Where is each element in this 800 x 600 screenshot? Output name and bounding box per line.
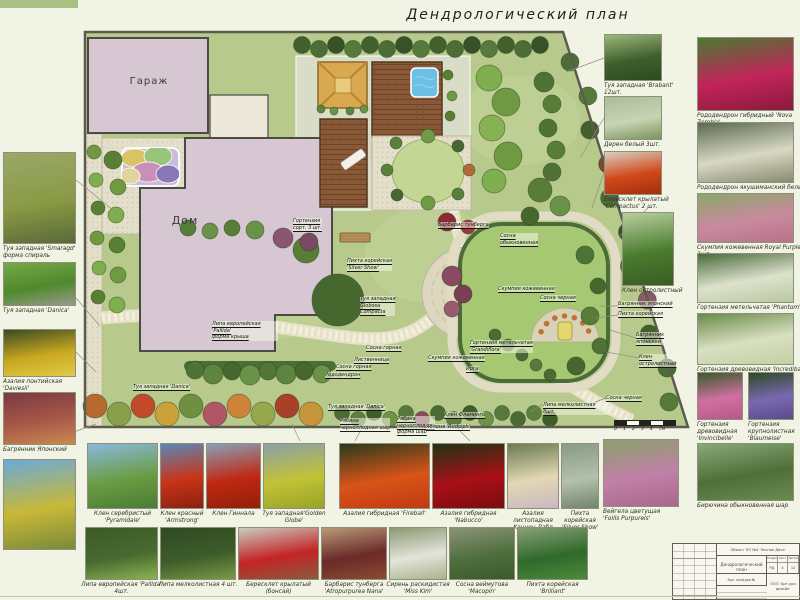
stamp-col-sheets: Листов (788, 556, 799, 562)
plan-annotation: Барбарис тунберга (438, 222, 489, 229)
plan-annotation: Рододендрон (325, 372, 360, 379)
plan-annotation: Сосна черная (540, 295, 576, 302)
plant-photo (160, 443, 204, 509)
plant-caption: Вейгела цветущая 'Follis Purpureis' (603, 509, 693, 523)
plant-caption: Багрянник Японский (3, 447, 90, 454)
page-title: Дендрологический план (400, 7, 636, 23)
plant-caption: Липа мелколистная 4 шт. (156, 582, 240, 589)
stamp-sheet-values: РД 4 12 (767, 563, 799, 574)
plant-photo (697, 122, 794, 183)
entry-block (210, 95, 268, 138)
pool (411, 68, 438, 97)
plant-caption: Барбарис тунберга 'Atropurpurea Nana' (317, 582, 391, 596)
plan-annotation: Багрянник японский (636, 332, 664, 345)
plant-photo (604, 96, 662, 140)
plan-annotation: Пихта корейская (618, 311, 663, 318)
plant-photo (748, 372, 794, 420)
flowerbed-pattern (120, 146, 180, 184)
plant-caption: Клен остролистный (622, 288, 688, 295)
plant-photo (697, 193, 794, 243)
stamp-row-label: Арх. посадка № (717, 574, 767, 586)
plant-caption: Сирень раскидистая 'Miss Kim' (385, 582, 451, 596)
scale-bar-segments (614, 420, 676, 426)
plant-photo (432, 443, 505, 509)
plant-caption: Туя западная 'Danica' (3, 308, 90, 315)
plan-annotation: Клен остролистный (639, 354, 677, 367)
plant-caption: Туя западная 'Smaragd' форма спираль (3, 246, 90, 260)
plant-caption: Рододендрон якушиманский белый (697, 185, 800, 192)
plant-caption: Азалия гибридная 'Fireball' (335, 511, 434, 518)
plant-caption: Бересклет крылатый (бонсай) (234, 582, 323, 596)
plant-caption: Азалия гибридная 'Nabucco' (428, 511, 509, 525)
stamp-col-sheet: Лист (778, 556, 789, 562)
plan-annotation: Туя западная Globosa Compacta (360, 296, 395, 316)
stamp-signature-rows (717, 586, 767, 599)
plant-photo (238, 527, 319, 580)
plan-annotation: Сосна черная (606, 395, 642, 402)
plant-caption: Клен серебристый 'Pyramidale' (83, 511, 162, 525)
plant-photo (87, 443, 158, 509)
plant-photo (263, 443, 325, 509)
plan-annotation: Сосна горная (336, 364, 371, 371)
stamp-sheet-headers: Стадия Лист Листов (767, 556, 799, 563)
plant-photo (507, 443, 559, 509)
corner-green-bar (0, 0, 78, 8)
title-block: Объект ПО №4 'Лесная Дача' Дендрологичес… (672, 543, 800, 600)
plan-annotation: Багрянник японский (618, 301, 673, 308)
plant-photo (389, 527, 447, 580)
plant-photo (697, 372, 743, 420)
plant-photo (160, 527, 236, 580)
stamp-project: Объект ПО №4 'Лесная Дача' (717, 544, 799, 556)
plan-annotation: Клен Фламинго (444, 412, 485, 419)
plant-photo (697, 37, 794, 111)
plant-photo (3, 329, 76, 377)
stamp-val-sheets: 12 (788, 563, 799, 573)
plant-photo (604, 151, 662, 195)
plant-caption: Сосна веймутова 'Macopin' (445, 582, 519, 596)
plant-photo (3, 392, 76, 445)
plant-caption: Пихта корейская 'Brilliant' (513, 582, 592, 596)
plan-annotation: Гортензия сорт. 3 шт. (293, 218, 322, 231)
wooden-bench (340, 233, 370, 242)
plant-photo (449, 527, 515, 580)
plant-photo (561, 443, 599, 509)
plant-caption: Липа европейская 'Pallida' 4шт. (81, 582, 162, 596)
plan-annotation: Липа европейская 'Pallida' форма крыша (212, 321, 278, 341)
plan-annotation: Сосна горная (366, 345, 401, 352)
scale-bar-labels: 0 1 2 3 4 5м (614, 427, 676, 432)
plant-caption: Гортензия крупнолистная 'Blaumeise' (748, 422, 800, 442)
stamp-val-stage: РД (767, 563, 778, 573)
stamp-col-stage: Стадия (767, 556, 778, 562)
plan-annotation: Туя западная 'Danica' (133, 384, 190, 391)
plan-annotation: Сосна обыкновенная (500, 233, 538, 246)
title-block-grid (673, 544, 717, 599)
plant-photo (3, 152, 76, 244)
garden-bench-yellow (558, 322, 572, 340)
stamp-val-sheet: 4 (778, 563, 789, 573)
plan-annotation: Скумпия кожевенная (428, 355, 485, 362)
plan-annotation: Рябина черноплодная шар (340, 418, 390, 431)
dendrological-plan-sheet: Дендрологический план Гараж Дом Туя запа… (0, 0, 800, 600)
plan-annotation: Скумпия кожевенная (498, 286, 555, 293)
plant-caption: Азалия понтийская 'Daviesii' (3, 379, 90, 393)
garage-label: Гараж (118, 76, 180, 87)
plan-annotation: Пихта корейская 'Silver Show' (347, 258, 392, 271)
plant-photo (517, 527, 588, 580)
plant-photo (321, 527, 387, 580)
plant-caption: Дерен белый 3шт. (604, 142, 676, 149)
plant-photo (339, 443, 430, 509)
plant-photo (603, 439, 679, 507)
plant-caption: Туя западная'Golden Globe' (259, 511, 329, 525)
plant-photo (604, 34, 662, 81)
plant-photo (697, 443, 794, 501)
plant-caption: Бирючина обыкновенная шар (697, 503, 800, 510)
plan-annotation: Ирга (466, 366, 479, 373)
plan-annotation: Туя западная 'Danica' (328, 404, 385, 411)
plan-annotation: Липа мелколистная 8шт. (543, 402, 609, 415)
plant-caption: Клен красный 'Armstrong' (156, 511, 208, 525)
plant-photo (697, 313, 794, 365)
plan-annotation: Лиственница (354, 357, 389, 364)
plant-caption: Клен Гиннала (202, 511, 265, 518)
plant-photo (85, 527, 158, 580)
stamp-doc-title: Дендрологический план (717, 556, 767, 574)
plant-caption: Туя западная 'Brabant' 12шт. (604, 83, 676, 97)
plant-photo (206, 443, 261, 509)
plan-annotation: Яблоня 'Rudolph' (426, 424, 470, 431)
plant-photo (697, 253, 794, 303)
sheet-bottom-rule (0, 596, 800, 597)
plant-photo (622, 212, 674, 286)
house-label: Дом (160, 214, 210, 227)
plant-photo (3, 262, 76, 306)
plant-caption: Гортензия метельчатая 'Phantom' (697, 305, 800, 312)
plant-photo (3, 459, 76, 550)
scale-bar: 0 1 2 3 4 5м (614, 420, 676, 432)
plan-annotation: Гортензия метельчатая 'Grandiflora' (470, 340, 533, 353)
plant-caption: Бересклет крылатый 'Compactus' 2 шт. (604, 197, 676, 211)
